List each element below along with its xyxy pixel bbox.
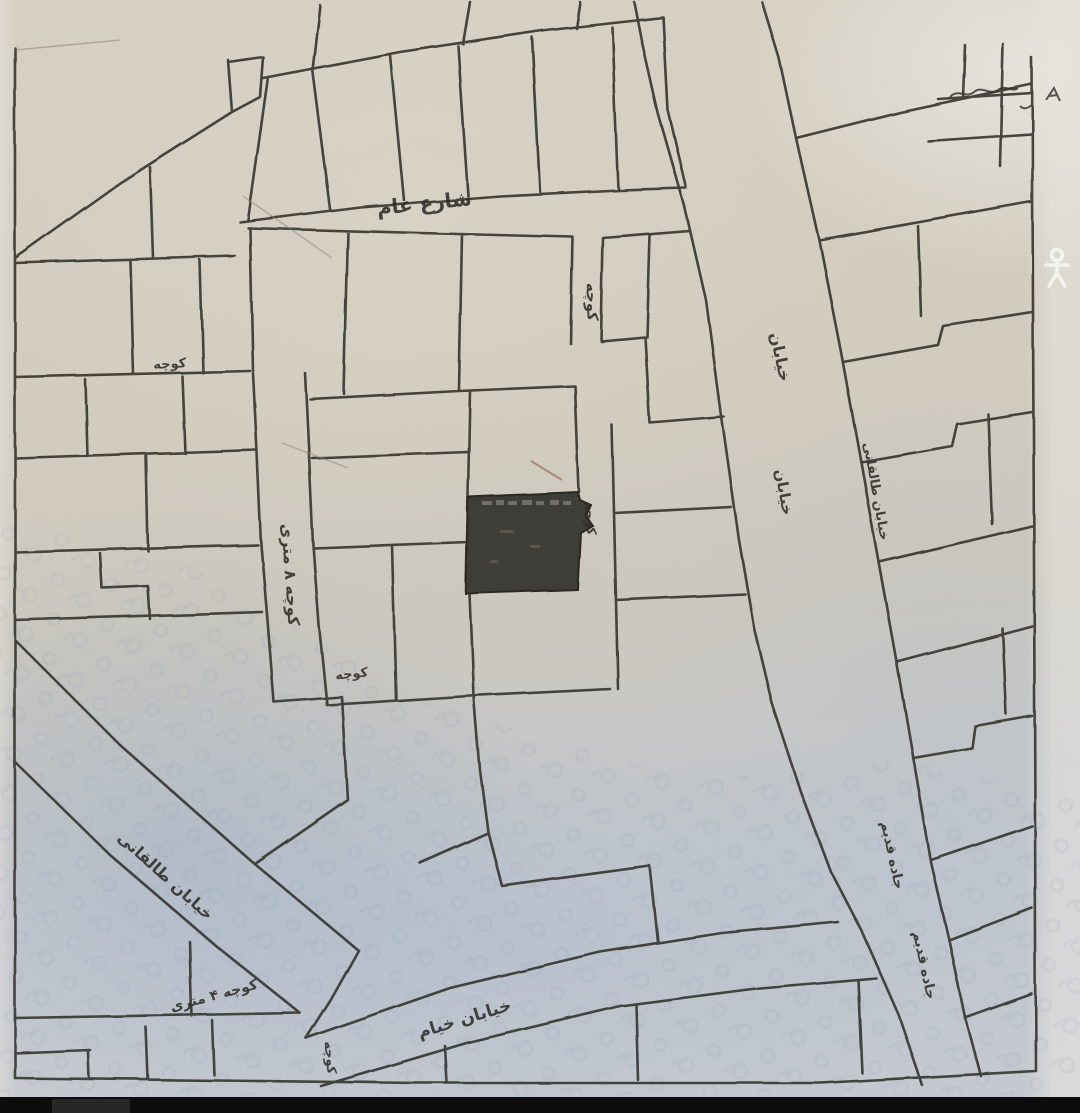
paper-grain-overlay: [0, 0, 1080, 1113]
map-canvas: شارع عام کوچه خیابان خیابان کوچه کوچه ۸ …: [0, 0, 1080, 1113]
scanned-map-photo: شارع عام کوچه خیابان خیابان کوچه کوچه ۸ …: [0, 0, 1080, 1113]
bottom-letterbox-bar: [0, 1097, 1080, 1113]
bottom-bar-gray-segment: [52, 1099, 130, 1113]
